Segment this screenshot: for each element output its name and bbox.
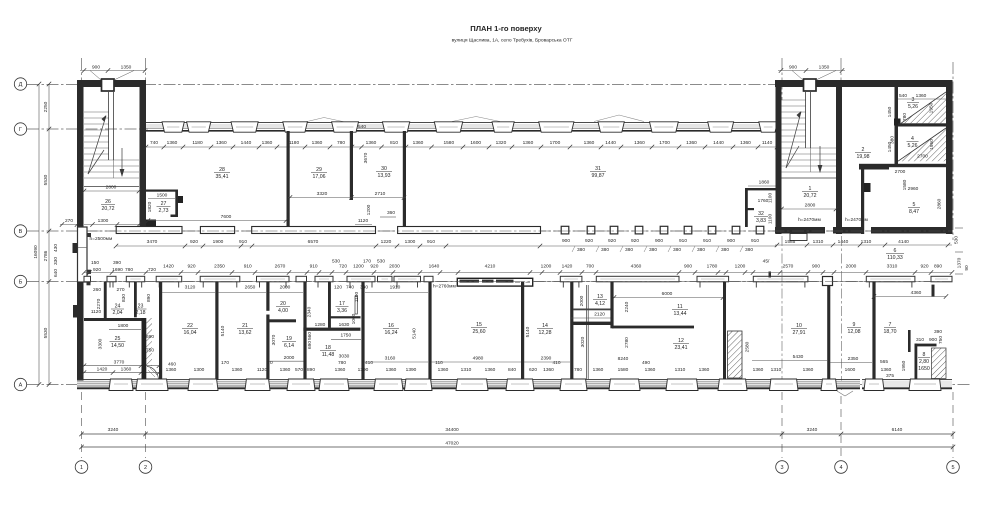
svg-text:Г: Г [19,127,22,133]
svg-text:900: 900 [562,238,570,244]
svg-text:890: 890 [146,294,152,302]
svg-text:2390: 2390 [541,356,552,362]
svg-text:18: 18 [325,345,331,351]
svg-text:1360: 1360 [438,367,449,373]
svg-text:7600: 7600 [221,214,232,220]
svg-text:3120: 3120 [185,285,196,291]
svg-text:8: 8 [923,352,926,358]
svg-text:21: 21 [242,323,248,329]
svg-text:1440: 1440 [605,140,616,146]
svg-text:8,47: 8,47 [909,209,919,215]
svg-text:28: 28 [219,167,225,173]
svg-text:45/: 45/ [763,259,770,265]
svg-text:2960: 2960 [908,186,919,192]
svg-text:1700: 1700 [550,140,561,146]
svg-text:1360: 1360 [312,140,323,146]
svg-text:2580: 2580 [745,341,751,352]
svg-text:1: 1 [809,186,812,192]
svg-text:13,93: 13,93 [378,173,391,179]
svg-text:16,24: 16,24 [385,330,398,336]
svg-text:2240: 2240 [624,301,630,312]
svg-text:110: 110 [435,360,443,366]
svg-text:900: 900 [789,65,797,71]
svg-text:1140: 1140 [762,140,773,146]
svg-text:1200: 1200 [541,264,552,270]
svg-text:780: 780 [338,360,346,366]
svg-text:1390: 1390 [406,367,417,373]
svg-text:5530: 5530 [43,327,49,338]
svg-text:3670: 3670 [363,152,369,163]
svg-text:4,12: 4,12 [595,301,605,307]
svg-text:5,26: 5,26 [907,143,917,149]
svg-text:620: 620 [529,367,537,373]
svg-text:1360: 1360 [386,367,397,373]
svg-text:150: 150 [91,260,99,266]
svg-text:2350: 2350 [848,356,859,362]
svg-text:3,36: 3,36 [337,308,347,314]
svg-text:1120: 1120 [91,309,102,315]
svg-text:4140: 4140 [898,239,909,245]
svg-text:вулиця Щаслива, 1А, село Требу: вулиця Щаслива, 1А, село Требухів, Брова… [452,38,573,44]
svg-text:1420: 1420 [562,264,573,270]
svg-text:380: 380 [625,247,633,253]
svg-text:1360: 1360 [216,140,227,146]
svg-text:Б: Б [19,280,23,286]
svg-text:47020: 47020 [445,441,459,447]
svg-text:1360: 1360 [523,140,534,146]
svg-text:2860: 2860 [937,198,943,209]
svg-text:9: 9 [853,322,856,328]
svg-text:3020: 3020 [580,336,586,347]
svg-text:18,70: 18,70 [884,329,897,335]
svg-text:19: 19 [286,336,292,342]
svg-text:1390: 1390 [358,367,369,373]
svg-text:920: 920 [631,238,639,244]
svg-text:390: 390 [113,260,121,266]
svg-text:6570: 6570 [308,239,319,245]
svg-text:530: 530 [332,259,340,265]
svg-text:1360: 1360 [166,367,177,373]
svg-text:1700: 1700 [659,140,670,146]
svg-text:910: 910 [310,264,318,270]
svg-text:ПЛАН 1-го поверху: ПЛАН 1-го поверху [470,24,542,33]
svg-text:1420: 1420 [97,367,108,373]
svg-text:1750: 1750 [340,333,351,339]
svg-text:5140: 5140 [412,328,418,339]
svg-text:В: В [19,229,23,235]
svg-text:3320: 3320 [317,191,328,197]
svg-text:12,08: 12,08 [848,329,861,335]
svg-text:1350: 1350 [819,65,830,71]
svg-text:1950: 1950 [901,360,907,371]
svg-text:540: 540 [899,93,907,99]
svg-text:780: 780 [902,113,908,121]
svg-text:20: 20 [280,301,286,307]
svg-text:430: 430 [53,244,59,252]
svg-text:910: 910 [427,239,435,245]
svg-text:380: 380 [721,247,729,253]
svg-text:12,28: 12,28 [539,330,552,336]
svg-text:490: 490 [642,360,650,366]
svg-text:7: 7 [889,322,892,328]
svg-text:1360: 1360 [699,367,710,373]
svg-text:70: 70 [267,360,273,366]
svg-text:1440: 1440 [241,140,252,146]
svg-text:99,87: 99,87 [592,173,605,179]
svg-text:2000: 2000 [284,355,295,361]
svg-text:3300: 3300 [98,338,104,349]
svg-text:2800: 2800 [106,185,117,191]
svg-text:920: 920 [187,264,195,270]
svg-text:750: 750 [146,348,154,354]
svg-text:690: 690 [146,334,154,340]
svg-text:890: 890 [934,264,942,270]
svg-text:270: 270 [65,218,73,224]
svg-text:1440: 1440 [713,140,724,146]
svg-text:1220: 1220 [381,239,392,245]
svg-text:3770: 3770 [114,360,125,366]
svg-text:h=2500мм: h=2500мм [90,236,113,242]
svg-text:1600: 1600 [845,367,856,373]
svg-text:1300: 1300 [405,239,416,245]
svg-text:1820: 1820 [147,201,153,212]
svg-text:330: 330 [53,257,59,265]
svg-text:1910: 1910 [390,285,401,291]
svg-text:20,72: 20,72 [804,193,817,199]
svg-text:740: 740 [150,140,158,146]
svg-text:1100: 1100 [768,193,774,204]
svg-text:29: 29 [316,167,322,173]
svg-text:10: 10 [796,323,802,329]
svg-text:3030: 3030 [339,354,350,360]
svg-text:1310: 1310 [813,239,824,245]
svg-text:5: 5 [913,202,916,208]
svg-text:25,60: 25,60 [473,329,486,335]
svg-text:1585: 1585 [785,239,796,245]
svg-text:16: 16 [388,323,394,329]
svg-text:1310: 1310 [675,367,686,373]
svg-text:35,41: 35,41 [216,174,229,180]
svg-text:32: 32 [758,211,764,217]
svg-text:1420: 1420 [163,264,174,270]
svg-text:1360: 1360 [121,367,132,373]
svg-text:570: 570 [295,367,303,373]
svg-text:110,33: 110,33 [887,255,903,261]
svg-text:1360: 1360 [753,367,764,373]
svg-text:690: 690 [307,341,313,349]
svg-text:380: 380 [745,247,753,253]
svg-text:17: 17 [339,301,345,307]
svg-text:270: 270 [116,287,124,293]
svg-text:1640: 1640 [429,264,440,270]
svg-text:14,50: 14,50 [111,343,124,349]
svg-text:1360: 1360 [686,140,697,146]
svg-text:2800: 2800 [805,203,816,209]
svg-text:17,06: 17,06 [313,174,326,180]
svg-text:1200: 1200 [735,264,746,270]
svg-text:1360: 1360 [584,140,595,146]
svg-text:2030: 2030 [389,264,400,270]
svg-text:540: 540 [358,124,366,130]
svg-text:900: 900 [929,337,937,343]
svg-text:1360: 1360 [645,367,656,373]
svg-text:2700: 2700 [917,154,928,160]
svg-text:27,91: 27,91 [793,330,806,336]
svg-text:1200: 1200 [366,204,372,215]
svg-text:380: 380 [577,247,585,253]
svg-text:1280: 1280 [315,322,326,328]
svg-text:460: 460 [168,362,176,368]
svg-text:830: 830 [121,294,127,302]
svg-text:1360: 1360 [335,367,346,373]
svg-text:А: А [19,383,23,389]
svg-text:h=2470мм: h=2470мм [798,217,821,223]
svg-text:1360: 1360 [916,93,927,99]
svg-text:780: 780 [125,267,133,273]
svg-text:1300: 1300 [194,367,205,373]
svg-text:16090: 16090 [33,245,39,259]
svg-text:4: 4 [911,136,914,142]
svg-text:530: 530 [377,259,385,265]
svg-text:27: 27 [161,201,167,207]
svg-text:5140: 5140 [220,325,226,336]
svg-text:3240: 3240 [807,427,818,433]
svg-text:2000: 2000 [846,264,857,270]
svg-text:1180: 1180 [289,140,300,146]
svg-text:2,80: 2,80 [919,359,929,365]
svg-text:1350: 1350 [121,65,132,71]
svg-text:1360: 1360 [280,367,291,373]
svg-text:5530: 5530 [43,174,49,185]
svg-text:2340: 2340 [307,306,313,317]
svg-text:2000: 2000 [579,295,585,306]
svg-text:530: 530 [954,236,960,244]
svg-text:3: 3 [780,465,783,471]
svg-text:360: 360 [387,210,395,216]
svg-text:3: 3 [912,97,915,103]
svg-text:740: 740 [346,285,354,291]
svg-text:2570: 2570 [783,264,794,270]
svg-text:1100: 1100 [768,214,774,225]
svg-text:1100: 1100 [354,292,360,303]
svg-text:23,41: 23,41 [675,345,688,351]
svg-text:750: 750 [938,336,944,344]
svg-text:5,26: 5,26 [908,104,918,110]
svg-text:1950: 1950 [929,139,935,150]
svg-text:1780: 1780 [707,264,718,270]
svg-text:1: 1 [80,465,83,471]
svg-text:1000: 1000 [351,313,357,324]
svg-text:1310: 1310 [861,239,872,245]
svg-text:1580: 1580 [618,367,629,373]
svg-text:2,18: 2,18 [135,310,145,316]
svg-text:11,48: 11,48 [322,352,335,358]
svg-text:2000: 2000 [280,285,291,291]
svg-text:910: 910 [679,238,687,244]
svg-text:12: 12 [678,338,684,344]
svg-text:3310: 3310 [887,264,898,270]
svg-text:13,62: 13,62 [239,330,252,336]
svg-text:31: 31 [595,166,601,172]
svg-text:23: 23 [138,304,144,310]
svg-text:3,83: 3,83 [756,218,766,224]
svg-text:8240: 8240 [618,356,629,362]
svg-text:1580: 1580 [902,179,908,190]
svg-text:5140: 5140 [525,326,531,337]
svg-text:920: 920 [920,264,928,270]
svg-text:34400: 34400 [445,427,459,433]
svg-text:1360: 1360 [262,140,273,146]
svg-text:1860: 1860 [759,180,770,186]
svg-text:2700: 2700 [895,169,906,175]
svg-text:560: 560 [307,332,313,340]
svg-text:910: 910 [703,238,711,244]
svg-text:380: 380 [601,247,609,253]
svg-text:1690: 1690 [112,267,123,273]
svg-text:3160: 3160 [385,356,396,362]
svg-text:1600: 1600 [470,140,481,146]
svg-text:1120: 1120 [358,218,369,224]
svg-text:840: 840 [508,367,516,373]
svg-text:900: 900 [727,238,735,244]
svg-text:3070: 3070 [271,334,277,345]
svg-text:900: 900 [655,238,663,244]
svg-text:700: 700 [586,264,594,270]
svg-text:2,04: 2,04 [112,310,122,316]
svg-text:1650: 1650 [918,366,930,372]
svg-text:1310: 1310 [771,367,782,373]
svg-text:810: 810 [390,140,398,146]
svg-text:2: 2 [144,465,147,471]
svg-text:h=2470мм: h=2470мм [845,217,868,223]
svg-text:4360: 4360 [911,290,922,296]
svg-text:170: 170 [221,360,229,366]
svg-text:90: 90 [964,265,970,271]
svg-text:900: 900 [92,65,100,71]
svg-text:6,14: 6,14 [284,343,294,349]
svg-text:2780: 2780 [624,337,630,348]
svg-text:6000: 6000 [662,291,673,297]
svg-text:1760: 1760 [758,198,769,204]
svg-text:20,72: 20,72 [102,206,115,212]
svg-text:1630: 1630 [339,322,350,328]
svg-text:1360: 1360 [593,367,604,373]
svg-text:1300: 1300 [98,218,109,224]
svg-text:26: 26 [105,199,111,205]
svg-text:310: 310 [916,337,924,343]
svg-text:16,04: 16,04 [184,330,197,336]
svg-text:1120: 1120 [257,367,268,373]
svg-text:170: 170 [363,259,371,265]
svg-text:2: 2 [862,147,865,153]
svg-text:2650: 2650 [245,285,256,291]
svg-text:4980: 4980 [473,356,484,362]
svg-text:2250: 2250 [43,101,49,112]
svg-text:900: 900 [684,264,692,270]
svg-text:1450: 1450 [887,106,893,117]
svg-text:2670: 2670 [275,264,286,270]
svg-text:13,44: 13,44 [674,311,687,317]
svg-text:910: 910 [751,238,759,244]
svg-text:1320: 1320 [496,140,507,146]
svg-text:6140: 6140 [892,427,903,433]
svg-text:1310: 1310 [461,367,472,373]
svg-text:4: 4 [839,465,842,471]
svg-text:24: 24 [115,304,121,310]
svg-text:920: 920 [585,238,593,244]
svg-text:375: 375 [886,373,894,379]
svg-text:2710: 2710 [375,191,386,197]
svg-text:640: 640 [53,269,59,277]
svg-text:780: 780 [337,140,345,146]
svg-text:15: 15 [476,322,482,328]
svg-text:5: 5 [951,465,954,471]
svg-text:1370: 1370 [957,257,963,268]
svg-text:2786: 2786 [43,250,49,261]
svg-text:1440: 1440 [838,239,849,245]
svg-text:410: 410 [552,360,560,366]
svg-text:3240: 3240 [108,427,119,433]
svg-text:2270: 2270 [96,298,102,309]
svg-text:22: 22 [187,323,193,329]
svg-text:4360: 4360 [631,264,642,270]
svg-text:25: 25 [115,336,121,342]
svg-text:920: 920 [93,267,101,273]
svg-text:1360: 1360 [366,140,377,146]
svg-text:5430: 5430 [793,354,804,360]
svg-text:1580: 1580 [443,140,454,146]
svg-text:910: 910 [244,264,252,270]
svg-text:1360: 1360 [543,367,554,373]
svg-text:4,00: 4,00 [278,308,288,314]
svg-text:1360: 1360 [413,140,424,146]
svg-text:1950: 1950 [929,102,935,113]
svg-text:19,98: 19,98 [857,154,870,160]
svg-text:2350: 2350 [214,264,225,270]
svg-text:380: 380 [649,247,657,253]
svg-text:13: 13 [597,294,603,300]
svg-text:1360: 1360 [881,367,892,373]
svg-text:1900: 1900 [213,239,224,245]
svg-text:2,73: 2,73 [158,208,168,214]
svg-text:4210: 4210 [485,264,496,270]
svg-text:30: 30 [381,166,387,172]
svg-text:565: 565 [880,359,888,365]
svg-text:1800: 1800 [118,323,129,329]
svg-text:390: 390 [934,329,942,335]
svg-text:910: 910 [239,239,247,245]
svg-text:120: 120 [334,285,342,291]
svg-text:1360: 1360 [740,140,751,146]
svg-text:780: 780 [574,367,582,373]
svg-text:380: 380 [697,247,705,253]
svg-text:920: 920 [190,239,198,245]
svg-text:Д: Д [19,82,23,88]
svg-text:1360: 1360 [634,140,645,146]
svg-text:1360: 1360 [803,367,814,373]
svg-text:720: 720 [148,267,156,273]
svg-text:410: 410 [365,360,373,366]
svg-text:1500: 1500 [157,193,168,199]
svg-text:260: 260 [93,287,101,293]
svg-text:890: 890 [307,367,315,373]
svg-text:1360: 1360 [167,140,178,146]
svg-text:380: 380 [673,247,681,253]
svg-text:900: 900 [812,264,820,270]
svg-text:14: 14 [542,323,548,329]
svg-text:920: 920 [608,238,616,244]
svg-text:3470: 3470 [147,239,158,245]
